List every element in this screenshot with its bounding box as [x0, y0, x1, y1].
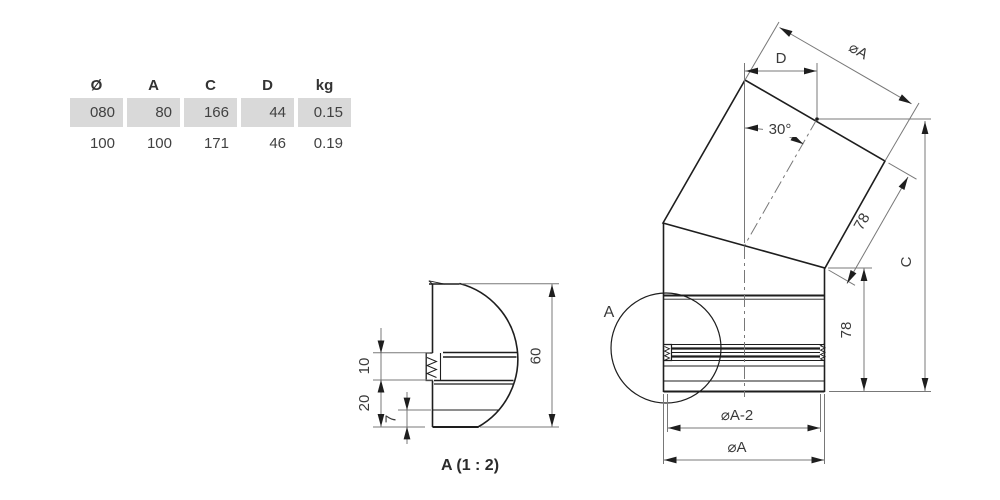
dim-d-label: D: [776, 50, 787, 67]
clip-spring: [665, 347, 670, 361]
main-view-labels: D ⌀A 30° 78 78 C ⌀A-2 ⌀A A: [604, 39, 915, 456]
dim-60-label: 60: [528, 348, 545, 365]
dim-dia-a-bottom-label: ⌀A: [727, 439, 746, 456]
detail-caption: A (1 : 2): [441, 457, 499, 474]
drawing-page: Ø A C D kg 080 80 166 44 0.15 100 100 17…: [0, 0, 1000, 500]
dim-7-label: 7: [383, 415, 400, 423]
detail-view-labels: 10 20 7 60 A (1 : 2): [356, 348, 545, 474]
dim-78-lower-label: 78: [838, 322, 855, 339]
dim-c-label: C: [898, 256, 915, 267]
clip-spring-detail: [427, 358, 437, 378]
main-view-dimensions: [664, 22, 932, 464]
dim-10-label: 10: [356, 358, 373, 375]
dim-78-upper-label: 78: [851, 210, 874, 233]
main-view-arrows: [664, 28, 928, 464]
dim-angle-label: 30°: [769, 121, 792, 138]
dim-dia-a-top-label: ⌀A: [846, 39, 871, 63]
detail-arc: [460, 284, 518, 428]
elbow-drawing: D ⌀A 30° 78 78 C ⌀A-2 ⌀A A: [0, 0, 1000, 500]
upper-pipe-outline: [663, 80, 885, 268]
dim-dia-a-minus2-label: ⌀A-2: [721, 407, 753, 424]
dim-20-label: 20: [356, 395, 373, 412]
detail-view-part: [426, 281, 518, 427]
detail-marker-label: A: [604, 304, 615, 321]
